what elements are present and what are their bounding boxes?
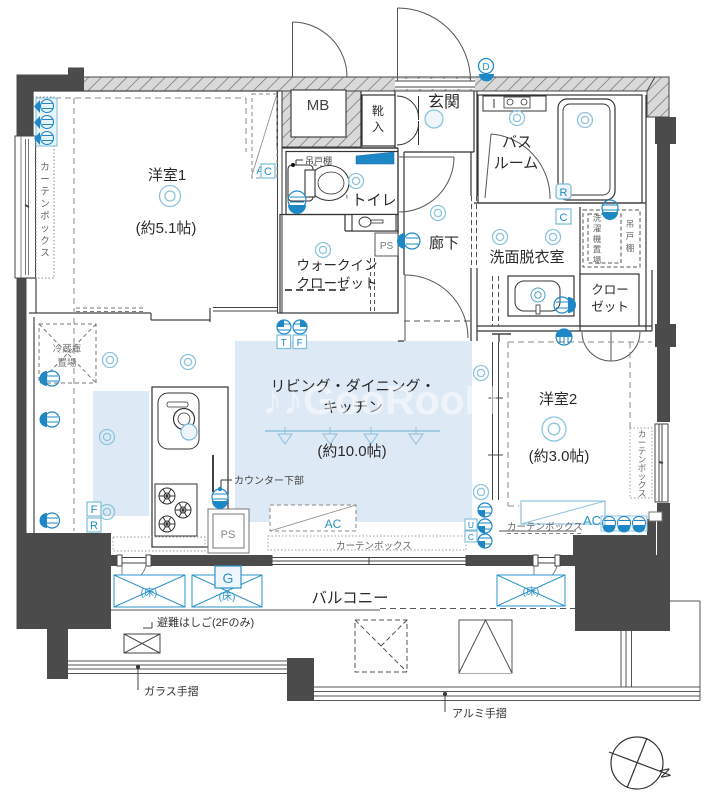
svg-text:C: C <box>264 166 272 178</box>
svg-text:吊戸棚: 吊戸棚 <box>626 219 635 253</box>
svg-text:クローゼット: クローゼット <box>297 276 378 291</box>
svg-text:カーテンボックス: カーテンボックス <box>336 541 412 552</box>
svg-text:クロー: クロー <box>591 283 629 297</box>
svg-text:(床): (床) <box>523 585 540 598</box>
svg-text:U: U <box>468 520 474 530</box>
svg-text:廊下: 廊下 <box>429 235 459 252</box>
svg-text:AC: AC <box>325 517 342 531</box>
svg-text:洗面脱衣室: 洗面脱衣室 <box>489 249 564 266</box>
svg-text:T: T <box>281 338 287 349</box>
svg-text:F: F <box>91 504 98 516</box>
svg-text:R: R <box>90 520 98 532</box>
svg-text:カーテンボックス: カーテンボックス <box>507 522 583 533</box>
svg-text:靴: 靴 <box>372 104 384 118</box>
svg-text:♪♪GooRooM: ♪♪GooRooM <box>262 377 499 423</box>
svg-text:ゼット: ゼット <box>591 300 629 314</box>
svg-text:ウォークイン: ウォークイン <box>297 258 378 273</box>
svg-text:入: 入 <box>372 120 384 134</box>
svg-text:洗濯機置場: 洗濯機置場 <box>593 213 602 265</box>
svg-text:PS: PS <box>221 529 236 541</box>
svg-text:MB: MB <box>307 97 330 114</box>
svg-text:(約5.1帖): (約5.1帖) <box>136 220 197 237</box>
svg-text:吊戸棚: 吊戸棚 <box>305 155 332 166</box>
svg-text:D: D <box>482 62 489 73</box>
svg-text:冷蔵庫: 冷蔵庫 <box>53 343 82 355</box>
svg-text:カーテンボックス: カーテンボックス <box>40 162 50 259</box>
svg-text:避難はしご(2Fのみ): 避難はしご(2Fのみ) <box>157 615 254 629</box>
svg-text:PS: PS <box>380 241 394 252</box>
svg-text:カーテンボックス: カーテンボックス <box>638 429 647 499</box>
svg-text:玄関: 玄関 <box>428 93 460 111</box>
svg-text:C: C <box>468 532 474 542</box>
svg-text:バス: バス <box>502 134 532 151</box>
svg-text:ルーム: ルーム <box>494 155 539 172</box>
svg-text:R: R <box>560 187 568 199</box>
svg-text:(床): (床) <box>219 590 236 603</box>
svg-text:バルコニー: バルコニー <box>311 590 388 607</box>
svg-text:(床): (床) <box>141 586 158 599</box>
svg-text:(約3.0帖): (約3.0帖) <box>529 448 590 465</box>
svg-text:カウンター下部: カウンター下部 <box>234 474 304 487</box>
svg-text:トイレ: トイレ <box>351 192 396 209</box>
svg-text:G: G <box>223 570 234 586</box>
svg-text:ガラス手摺: ガラス手摺 <box>144 684 199 698</box>
svg-text:洋室2: 洋室2 <box>539 391 577 408</box>
svg-text:洋室1: 洋室1 <box>148 167 186 184</box>
svg-text:C: C <box>560 212 568 224</box>
svg-text:AC: AC <box>583 513 601 528</box>
svg-text:F: F <box>297 338 303 349</box>
svg-text:(約10.0帖): (約10.0帖) <box>317 443 386 460</box>
svg-text:アルミ手摺: アルミ手摺 <box>452 706 507 720</box>
